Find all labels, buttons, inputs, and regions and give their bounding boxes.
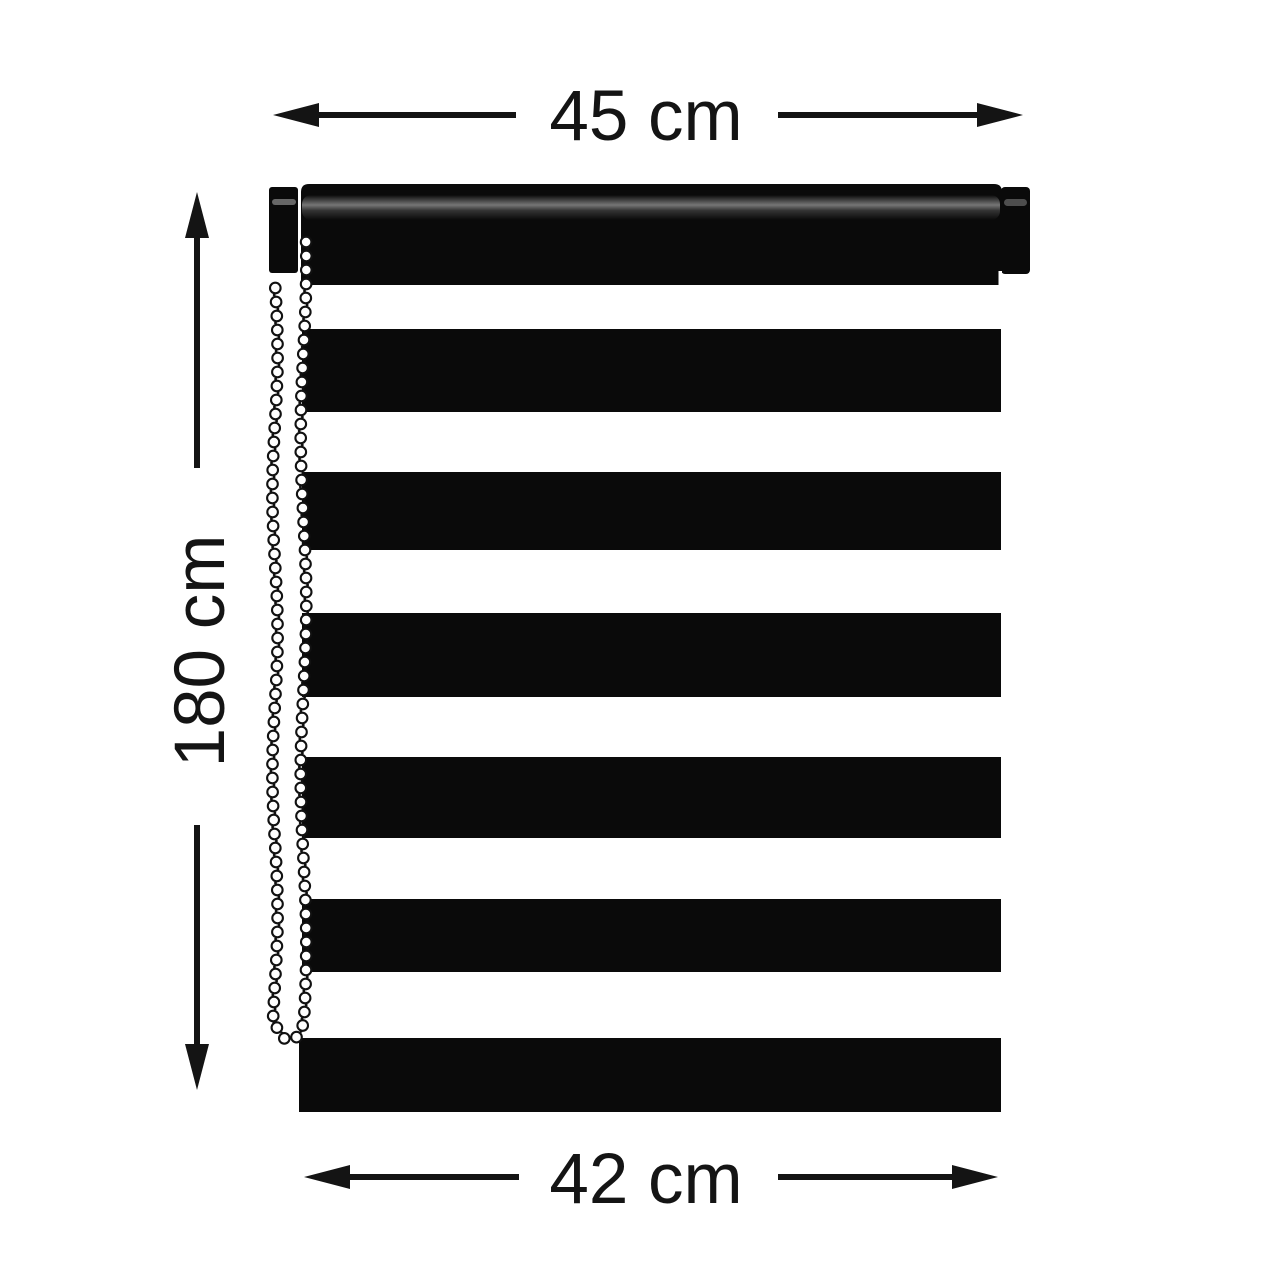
svg-text:45 cm: 45 cm xyxy=(549,77,742,156)
svg-text:42 cm: 42 cm xyxy=(549,1140,742,1219)
svg-text:180 cm: 180 cm xyxy=(161,535,240,768)
